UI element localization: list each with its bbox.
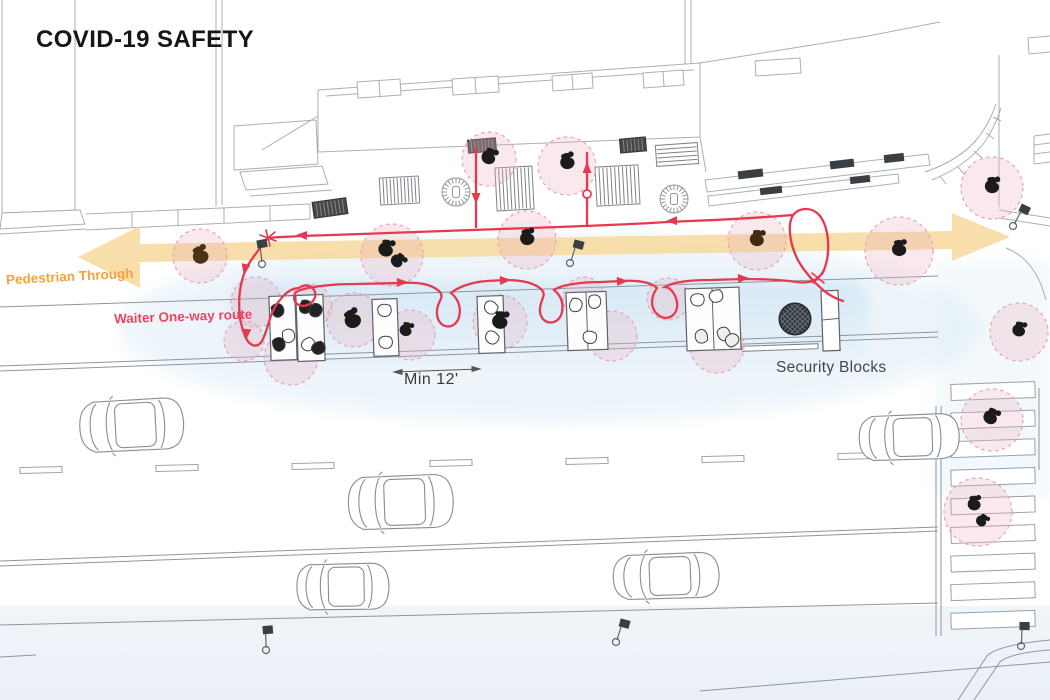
meter-head [573,240,584,249]
car [347,469,454,535]
car-body [297,563,390,611]
car [296,558,389,615]
pedestrian-head [901,239,907,245]
bench-hatch [655,143,698,167]
hatch-frame [379,176,419,205]
car [612,547,720,605]
min-spacing-label: Min 12' [404,372,459,388]
right-wash [935,262,1050,497]
car-mirror [888,411,891,414]
lane-dash [566,457,608,464]
car-mirror [381,531,384,534]
site-plan-svg [0,0,1050,700]
hatch-frame [595,165,640,206]
left-center-block [234,120,332,196]
meter-pole [1014,211,1020,224]
route-arrowhead [472,193,481,204]
pedestrian-figure [892,239,907,256]
bench-hatch [379,176,419,205]
chair [583,331,597,344]
covid-safety-site-plan: COVID-19 SAFETY Pedestrian Through Waite… [0,0,1050,700]
lane-dash [702,455,744,462]
left-building-awning [0,210,86,234]
tree-grate [660,185,688,213]
pedestrian-figure [968,495,981,510]
car-body [348,474,455,531]
crosswalk-bar [951,553,1036,572]
median-lines [0,527,938,566]
pedestrian-head [976,495,981,500]
car-mirror [644,550,647,553]
meter-head [1020,623,1029,630]
crosswalk-bar [951,582,1036,601]
security-blocks-label: Security Blocks [776,360,886,376]
door-mat [619,137,646,153]
page-title: COVID-19 SAFETY [36,28,254,52]
car-mirror [646,601,649,604]
car-mirror [110,396,113,399]
right-awning-strips [705,154,930,206]
meter-base [1009,222,1017,230]
route-door-marker [583,190,591,198]
route-arrowhead [666,216,677,225]
distance-circle [224,321,264,361]
bench-hatch [595,165,640,206]
door-mat [312,198,348,219]
meter-head [619,619,630,628]
bottom-wash [0,606,1050,700]
lane-dash [156,464,198,471]
distance-circle [944,478,1012,546]
hatch-frame [655,143,698,167]
dining-table [566,291,608,350]
meter-head [263,626,273,634]
car-mirror [379,472,382,475]
car-mirror [113,453,116,456]
lane-dash [292,462,334,469]
tree-grate [442,178,470,206]
lane-dash [430,459,472,466]
lane-dash [20,466,62,473]
car [78,393,185,458]
storefront-band-left [86,204,310,230]
dining-table [685,287,742,351]
car [858,408,960,465]
dining-table [269,296,298,361]
dining-table [372,299,399,357]
car-mirror [890,462,893,465]
car-mirror [324,559,327,562]
meter-head [257,239,267,247]
route-arrowhead [296,230,307,240]
